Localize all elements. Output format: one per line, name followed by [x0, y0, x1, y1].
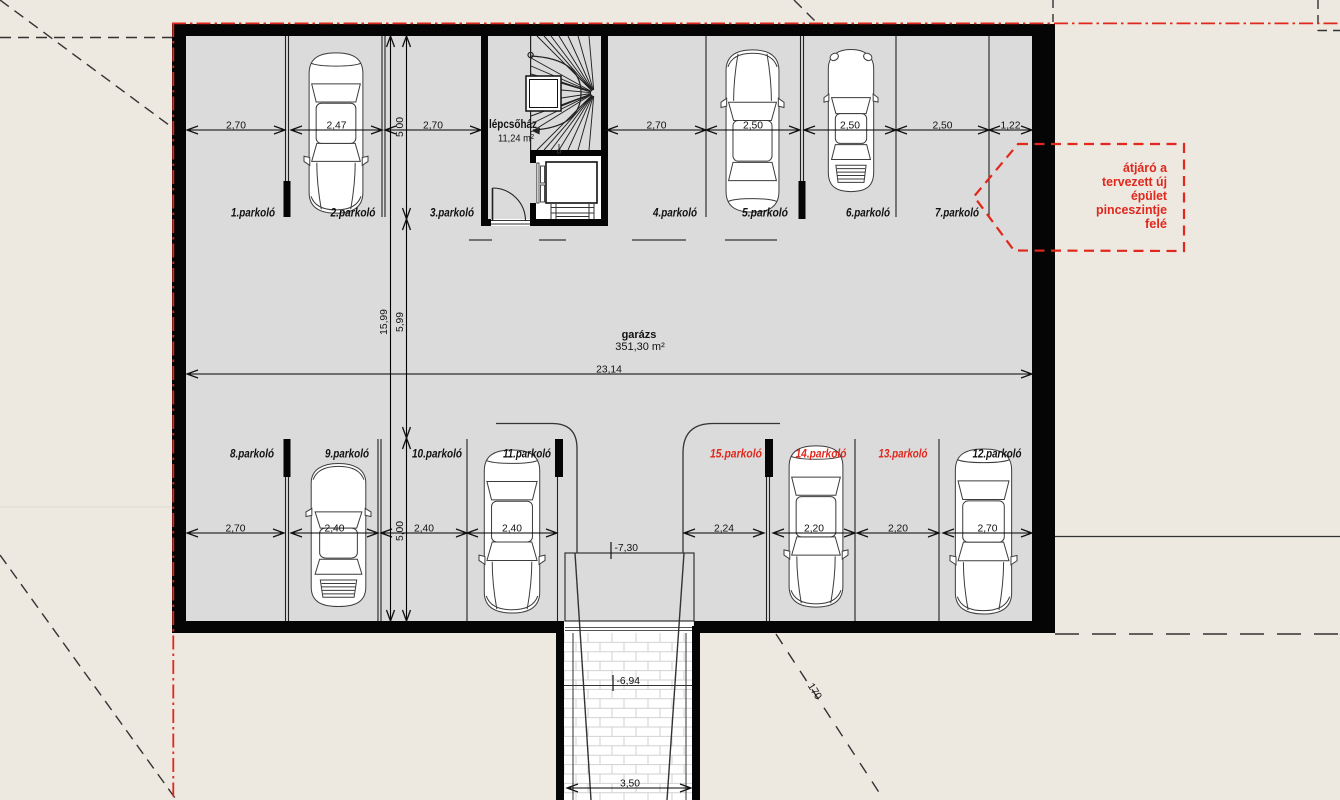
svg-text:10.parkoló: 10.parkoló — [412, 447, 462, 461]
svg-text:tervezett új: tervezett új — [1102, 175, 1167, 189]
svg-text:3,50: 3,50 — [620, 779, 640, 790]
svg-text:2,70: 2,70 — [977, 524, 997, 535]
svg-text:6.parkoló: 6.parkoló — [846, 206, 890, 220]
svg-text:5,99: 5,99 — [395, 312, 406, 332]
svg-text:2,70: 2,70 — [646, 121, 666, 132]
svg-text:5,00: 5,00 — [395, 521, 406, 541]
svg-text:2,40: 2,40 — [324, 524, 344, 535]
svg-text:9.parkoló: 9.parkoló — [325, 447, 369, 461]
svg-text:5.parkoló: 5.parkoló — [742, 206, 788, 220]
svg-text:2.parkoló: 2.parkoló — [330, 206, 376, 220]
svg-text:3.parkoló: 3.parkoló — [430, 206, 474, 220]
svg-text:351,30 m²: 351,30 m² — [615, 341, 665, 353]
svg-text:2,50: 2,50 — [840, 121, 860, 132]
svg-text:garázs: garázs — [622, 329, 657, 341]
svg-text:2,20: 2,20 — [804, 524, 824, 535]
svg-text:épület: épület — [1131, 189, 1168, 203]
svg-text:felé: felé — [1145, 217, 1167, 231]
svg-text:1,22: 1,22 — [1000, 121, 1020, 132]
svg-text:11,24 m²: 11,24 m² — [498, 134, 535, 145]
svg-text:1.parkoló: 1.parkoló — [231, 206, 275, 220]
svg-text:2,50: 2,50 — [932, 121, 952, 132]
svg-text:pinceszintje: pinceszintje — [1096, 203, 1167, 217]
svg-text:2,70: 2,70 — [225, 524, 245, 535]
svg-text:2,20: 2,20 — [888, 524, 908, 535]
svg-text:8.parkoló: 8.parkoló — [230, 447, 274, 461]
svg-text:2,40: 2,40 — [502, 524, 522, 535]
svg-text:11.parkoló: 11.parkoló — [503, 447, 551, 461]
svg-text:átjáró a: átjáró a — [1123, 161, 1168, 175]
svg-text:23,14: 23,14 — [596, 365, 622, 376]
svg-text:4.parkoló: 4.parkoló — [652, 206, 697, 220]
svg-text:12.parkoló: 12.parkoló — [973, 447, 1022, 461]
svg-text:2,50: 2,50 — [743, 121, 763, 132]
svg-text:15.parkoló: 15.parkoló — [710, 447, 762, 461]
svg-text:5,00: 5,00 — [395, 117, 406, 137]
svg-text:2,24: 2,24 — [714, 524, 734, 535]
svg-text:lépcsőház: lépcsőház — [489, 119, 537, 131]
svg-text:15,99: 15,99 — [379, 309, 390, 335]
svg-text:2,70: 2,70 — [226, 121, 246, 132]
svg-text:7.parkoló: 7.parkoló — [935, 206, 979, 220]
svg-text:2,47: 2,47 — [326, 121, 346, 132]
svg-text:14.parkoló: 14.parkoló — [796, 447, 847, 461]
svg-text:-7,30: -7,30 — [615, 543, 639, 554]
svg-text:2,70: 2,70 — [423, 121, 443, 132]
svg-text:-6,94: -6,94 — [617, 676, 641, 687]
svg-text:2,40: 2,40 — [414, 524, 434, 535]
svg-text:13.parkoló: 13.parkoló — [879, 447, 928, 461]
